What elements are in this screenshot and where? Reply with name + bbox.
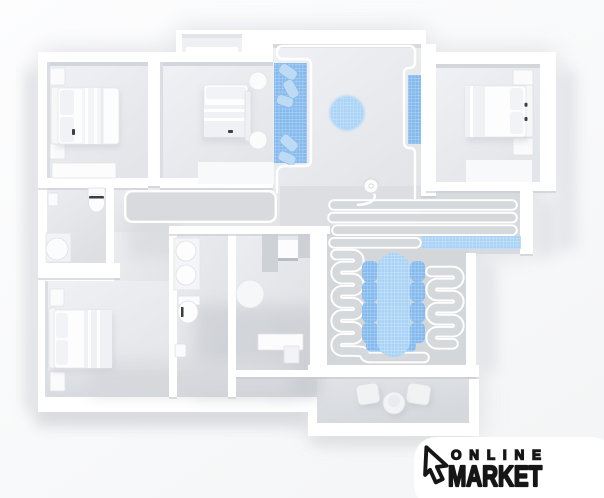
svg-text:MARKET: MARKET xyxy=(448,461,542,493)
